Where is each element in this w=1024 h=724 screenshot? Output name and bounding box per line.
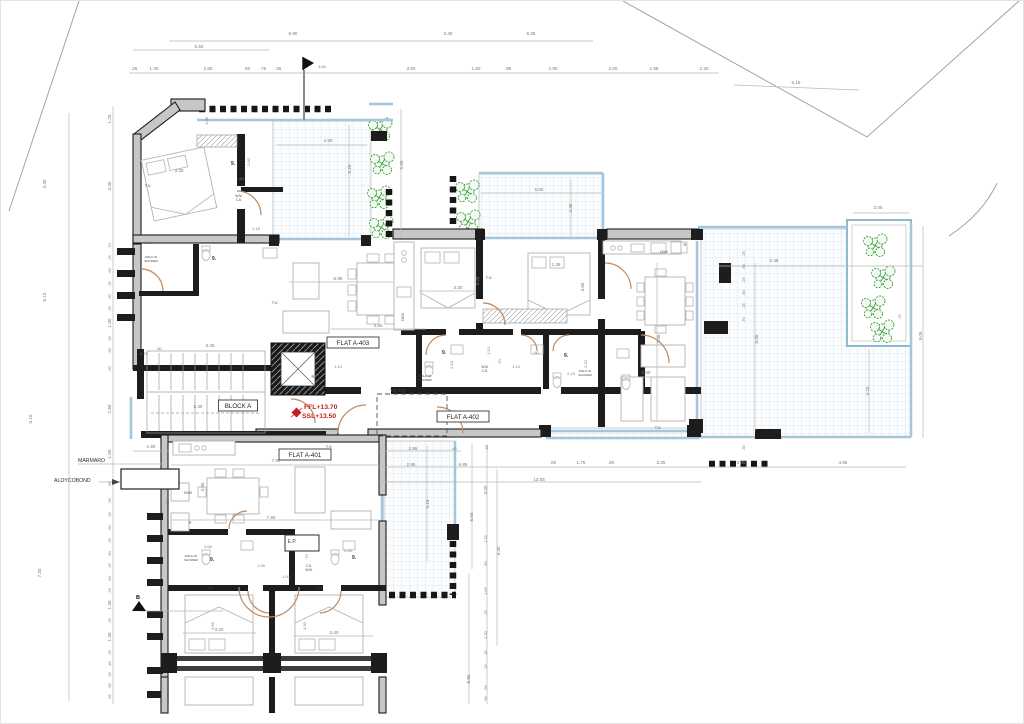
dimension-text: .25 — [107, 511, 112, 517]
dimension-text: .25 — [483, 663, 488, 669]
dimension-text: 2.90 — [549, 66, 558, 71]
dimension-text: 5.10 — [425, 499, 430, 508]
dining-table — [637, 269, 693, 333]
dimension-text: .35 — [741, 444, 746, 450]
dimension-text: .60 — [107, 524, 112, 530]
room-number-label: 9. — [352, 555, 357, 561]
sofa — [621, 377, 643, 421]
dimension-text: .25 — [107, 671, 112, 677]
dimension-text: 5.15 — [792, 80, 801, 85]
elevator — [271, 343, 325, 395]
dimension-text: .60 — [608, 460, 615, 465]
terrace-south — [384, 441, 455, 597]
dimension-text: 1.30 — [145, 240, 154, 245]
dimension-text: 4.40 — [42, 179, 47, 188]
tv-label: T.V. — [486, 275, 493, 280]
clothes-dryer-label: C.D. — [236, 198, 242, 202]
dimension-text: .45 — [483, 649, 488, 655]
kitchen-counter — [173, 441, 235, 455]
flat-label: FLAT A-402 — [447, 414, 480, 421]
dimension-text: 1.25 — [107, 114, 112, 123]
tv-label: T.V. — [316, 585, 323, 590]
dimension-text: .60 — [741, 263, 746, 269]
bed — [185, 595, 253, 653]
aloycobond-callout-box — [121, 469, 179, 489]
dimension-text: 3.80 — [200, 482, 205, 491]
dimension-text: 6.85 — [459, 462, 468, 467]
dimension-text: .25 — [107, 617, 112, 623]
dimension-text: 3.80 — [407, 66, 416, 71]
section-flag-bottom — [132, 601, 146, 611]
dimension-text: .25 — [107, 305, 112, 311]
dimension-text: 4.25 — [865, 386, 870, 395]
flat-label: FLAT A-403 — [337, 340, 370, 347]
material-label: ALOYCOBOND — [54, 478, 91, 484]
dimension-text: 1.15 — [252, 226, 261, 231]
dimension-text: 2.05 — [874, 205, 883, 210]
dimension-text: .25 — [107, 649, 112, 655]
dimension-text: 3.50 — [374, 323, 383, 328]
dimension-text: .50 — [156, 346, 162, 351]
dimension-text: 2.40 — [444, 31, 453, 36]
block-label: BLOCK A — [225, 403, 252, 410]
dimension-text: .60 — [107, 293, 112, 299]
walkin-shower-label: SHOWER — [578, 373, 592, 377]
dimension-text: .25 — [107, 254, 112, 260]
tv-label: T.V. — [655, 425, 662, 430]
dimension-text: 9.30 — [496, 546, 501, 555]
dimension-text: .95 — [505, 66, 512, 71]
dimension-text: 3.50 — [210, 621, 215, 630]
dimension-text: 6.35 — [770, 258, 779, 263]
dimension-text: .80 — [238, 176, 244, 181]
tv-label: T.V. — [326, 444, 333, 449]
floor-plan-drawing: 8.902.406.355.50.251.252.65.60.75.353.60… — [1, 1, 1024, 724]
dimension-text: 3.40 — [330, 630, 339, 635]
dimension-text: 1.30 — [483, 630, 488, 639]
dimension-text: .25 — [131, 66, 138, 71]
dimension-text: 6.35 — [527, 31, 536, 36]
sofa — [295, 467, 325, 513]
level-annotation: FFL+13.70 — [304, 404, 338, 411]
dimension-text: 1.65 — [483, 586, 488, 595]
dimension-text: 2.00 — [246, 157, 251, 166]
dimension-text: 2.40 — [568, 203, 573, 212]
dimension-text: 2.00 — [609, 66, 618, 71]
dimension-text: 1.75 — [577, 460, 586, 465]
furniture — [141, 135, 693, 705]
dimension-text: 1.90 — [147, 444, 156, 449]
level-annotation: SSL+13.50 — [302, 413, 336, 420]
bed — [421, 248, 475, 308]
dimension-text: 4.40 — [107, 181, 112, 190]
bed-cut — [295, 677, 363, 705]
dimension-text: 1.69 — [650, 66, 659, 71]
dishwasher-label: D/W — [184, 490, 192, 495]
dimension-text: .25 — [107, 280, 112, 286]
dimension-text: 3.60 — [642, 370, 651, 375]
section-letter: B — [136, 595, 140, 601]
walkin-shower-label: SHOWER — [184, 558, 198, 562]
fridge — [171, 513, 189, 531]
dimension-text: 8.05 — [754, 334, 759, 343]
walkin-shower-label: SHOWER — [418, 378, 432, 382]
dimension-text: 7.85 — [656, 334, 661, 343]
dimension-text: 6.80 — [466, 674, 471, 683]
dimension-text: 1.25 — [150, 66, 159, 71]
dimension-text: 4.90 — [324, 138, 333, 143]
dimension-text: 1.10 — [334, 364, 343, 369]
daybed — [651, 377, 685, 421]
dimension-text: .75 — [260, 66, 267, 71]
dimension-text: 3.30 — [454, 285, 463, 290]
room-number-label: 9. — [212, 256, 217, 262]
dimension-text: 1.60 — [472, 66, 481, 71]
room-number-label: 9. — [231, 161, 236, 167]
dimension-text: .60 — [107, 550, 112, 556]
dimension-text: .50 — [165, 498, 170, 504]
dimension-text: .70 — [304, 553, 309, 559]
dimension-text: .60 — [741, 289, 746, 295]
dimension-text: 8.90 — [289, 31, 298, 36]
dimension-text: .50 — [107, 480, 112, 486]
dimension-text: .60 — [107, 267, 112, 273]
dimension-text: 1.10 — [512, 364, 521, 369]
dimension-text: 1.30 — [107, 632, 112, 641]
dimension-text: .75 — [897, 313, 902, 319]
level-marker — [291, 408, 302, 418]
floor-plan-page: 8.902.406.355.50.251.252.65.60.75.353.60… — [0, 0, 1024, 724]
dishwasher-label: D/W — [660, 249, 668, 254]
staircase — [147, 351, 265, 433]
section-flag-top — [303, 57, 314, 70]
dimension-text: 3.60 — [318, 64, 327, 69]
dimension-text: .60 — [550, 460, 557, 465]
dimension-text: 6.50 — [469, 512, 474, 521]
dimension-text: 4.95 — [839, 460, 848, 465]
dimension-text: 1.75 — [140, 351, 149, 356]
dimension-text: 5.10 — [42, 292, 47, 301]
washing-machine-label: W.M. — [305, 568, 312, 572]
wardrobe — [483, 309, 567, 323]
tepr-label: T.E.P.R. — [390, 388, 406, 393]
dimension-text: .60 — [244, 66, 251, 71]
fridge-label: R — [684, 242, 687, 247]
dimension-text: .95 — [107, 497, 112, 503]
dimension-text: .25 — [107, 537, 112, 543]
dimension-text: 5.25 — [347, 164, 352, 173]
dimension-text: .55 — [107, 693, 112, 699]
dimension-text: 2.20 — [344, 548, 353, 553]
clothes-dryer-label: C.D. — [482, 369, 488, 373]
dimension-text: .40 — [451, 446, 457, 451]
dimension-text: 2.60 — [107, 404, 112, 413]
dimension-text: .60 — [107, 575, 112, 581]
room-number-label: 9. — [442, 350, 447, 356]
dimension-text: .60 — [483, 560, 488, 566]
tv-label: T.V. — [272, 300, 279, 305]
dimension-text: 3.30 — [175, 168, 184, 173]
dimension-text: .25 — [107, 335, 112, 341]
dimension-text: .25 — [483, 609, 488, 615]
dimension-text: .25 — [107, 587, 112, 593]
dimension-text: 1.05 — [257, 563, 266, 568]
dimension-text: 3.25 — [657, 460, 666, 465]
dimension-text: 3.20 — [475, 276, 480, 285]
dimension-text: 1.00 — [204, 116, 209, 125]
armchair — [293, 263, 319, 299]
wardrobe — [197, 135, 237, 147]
dimension-text: .35 — [275, 66, 282, 71]
dimension-text: 3.30 — [302, 621, 307, 630]
dimension-text: 1.10 — [486, 346, 491, 355]
dimension-text: 2.95 — [407, 462, 416, 467]
dimension-text: 5.50 — [399, 160, 404, 169]
dimension-text: .60 — [533, 350, 539, 355]
material-label: MARMARO — [78, 458, 105, 464]
dimension-text: 2.65 — [204, 544, 213, 549]
dimension-text: 5.00 — [535, 187, 544, 192]
dining-table — [198, 469, 268, 523]
tv-label: T.V. — [145, 183, 152, 188]
dimension-text: 7.30 — [37, 568, 42, 577]
dimension-text: 3.60 — [580, 282, 585, 291]
room-number-label: 9. — [564, 353, 569, 359]
dimension-text: 9.05 — [918, 331, 923, 340]
dimension-text: 5.95 — [334, 276, 343, 281]
dimension-text: 1.35 — [552, 262, 561, 267]
dimension-text: .55 — [107, 682, 112, 688]
dimension-text: .70 — [497, 358, 502, 364]
dimension-text: 1.30 — [107, 600, 112, 609]
dimension-text: .70 — [741, 316, 746, 322]
dishwasher-label: D/W — [400, 313, 405, 321]
dimension-text: 1.35 — [483, 534, 488, 543]
fridge-label: R — [312, 374, 315, 379]
dimension-text: 3.00 — [483, 485, 488, 494]
leader-arrowhead — [112, 479, 120, 485]
dimension-text: 1.30 — [107, 318, 112, 327]
dimension-text: .70 — [107, 242, 112, 248]
dimension-text: .50 — [107, 365, 112, 371]
dimension-text: 7.90 — [267, 515, 276, 520]
dimension-text: 1.00 — [282, 574, 291, 579]
room-number-label: 9. — [210, 557, 215, 563]
walkin-shower-label: SHOWER — [144, 259, 158, 263]
electrical-panel-label: E.P. — [288, 539, 297, 545]
dimension-text: .90 — [107, 347, 112, 353]
dimension-text: .45 — [107, 660, 112, 666]
bed-cut — [185, 677, 253, 705]
dimension-text: .55 — [483, 695, 488, 701]
dimension-text: 2.95 — [409, 446, 418, 451]
terrace-northwest — [273, 121, 371, 239]
sofa — [283, 311, 329, 333]
dimension-text: 5.30 — [194, 404, 203, 409]
dimension-text: 3.25 — [206, 343, 215, 348]
dimension-text: 2.20 — [583, 359, 588, 368]
tv-label: T.V. — [208, 585, 215, 590]
dimension-text: .55 — [483, 684, 488, 690]
dimension-text: 1.50 — [107, 449, 112, 458]
sofa — [641, 345, 685, 367]
material-label-layer: MARMAROALOYCOBOND — [54, 458, 105, 484]
dimension-text: .25 — [107, 562, 112, 568]
dimension-text: 13.05 — [533, 477, 545, 482]
dimension-text: .25 — [741, 276, 746, 282]
bed — [141, 147, 216, 221]
dimension-text: 5.50 — [195, 44, 204, 49]
dimension-text: 2.20 — [700, 66, 709, 71]
dimension-text: 2.10 — [449, 360, 454, 369]
dimension-text: 2.15 — [567, 371, 576, 376]
dimension-text: 5.10 — [28, 414, 33, 423]
dimension-text: .25 — [741, 250, 746, 256]
flat-label: FLAT A-401 — [289, 452, 322, 459]
dimension-text: 2.65 — [204, 66, 213, 71]
dimension-text: 3.45 — [737, 460, 746, 465]
dimension-text: .25 — [741, 302, 746, 308]
fridge-label: R — [189, 520, 192, 525]
level-annotation-layer: FFL+13.70SSL+13.50 — [302, 404, 338, 420]
dimension-text: 3.20 — [215, 627, 224, 632]
dimension-text: .45 — [484, 444, 489, 450]
section-letter-layer: B — [136, 595, 140, 601]
terrace-north — [479, 174, 603, 238]
terrace-strip — [546, 428, 694, 438]
